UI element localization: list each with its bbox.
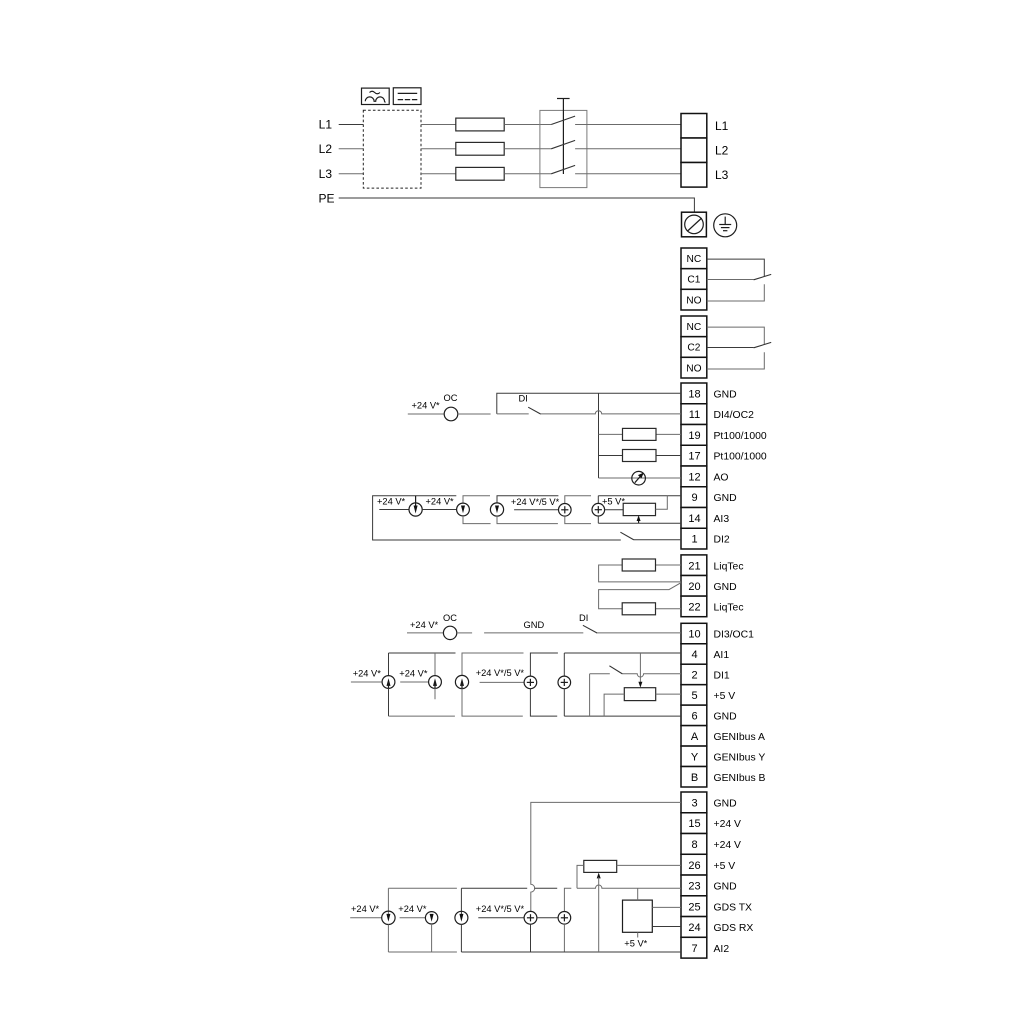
svg-text:LiqTec: LiqTec [714, 561, 744, 572]
svg-text:+24 V*: +24 V* [412, 400, 441, 410]
svg-text:L1: L1 [319, 118, 333, 132]
svg-text:GDS RX: GDS RX [714, 923, 754, 934]
svg-text:+24 V*: +24 V* [410, 620, 439, 630]
svg-text:+24 V*: +24 V* [399, 669, 428, 679]
svg-text:NC: NC [687, 322, 702, 333]
svg-text:GENIbus B: GENIbus B [714, 773, 766, 784]
svg-text:GND: GND [714, 882, 737, 893]
svg-text:DI: DI [579, 613, 588, 623]
svg-text:15: 15 [688, 818, 700, 830]
svg-text:11: 11 [689, 409, 700, 421]
svg-text:GND: GND [714, 712, 737, 723]
svg-text:AI3: AI3 [714, 514, 730, 525]
svg-text:AO: AO [714, 473, 729, 484]
svg-text:+5 V: +5 V [714, 691, 736, 702]
svg-text:DI: DI [519, 394, 528, 404]
svg-text:6: 6 [691, 711, 697, 723]
svg-text:L2: L2 [715, 144, 729, 158]
svg-text:L1: L1 [715, 119, 729, 133]
svg-text:GND: GND [524, 620, 545, 630]
svg-text:DI2: DI2 [714, 535, 730, 546]
svg-text:8: 8 [691, 839, 697, 851]
svg-text:19: 19 [688, 430, 700, 442]
svg-text:GDS TX: GDS TX [714, 902, 753, 913]
svg-text:NO: NO [686, 363, 701, 374]
svg-text:+5 V*: +5 V* [624, 939, 647, 949]
svg-text:OC: OC [444, 393, 458, 403]
svg-text:LiqTec: LiqTec [714, 603, 744, 614]
svg-text:4: 4 [691, 649, 697, 661]
svg-text:DI3/OC1: DI3/OC1 [714, 630, 755, 641]
svg-text:OC: OC [443, 613, 457, 623]
svg-text:5: 5 [691, 690, 697, 702]
svg-text:+24 V: +24 V [714, 819, 742, 830]
svg-text:A: A [691, 731, 699, 743]
svg-text:NO: NO [686, 295, 701, 306]
svg-text:25: 25 [688, 901, 700, 913]
svg-text:+24 V*: +24 V* [351, 904, 380, 914]
svg-text:L3: L3 [319, 167, 333, 181]
svg-text:12: 12 [688, 472, 700, 484]
svg-text:AI2: AI2 [714, 944, 730, 955]
svg-text:L3: L3 [715, 168, 729, 182]
svg-text:L2: L2 [319, 142, 333, 156]
svg-text:+24 V*/5 V*: +24 V*/5 V* [511, 497, 560, 507]
svg-text:26: 26 [688, 860, 700, 872]
svg-text:22: 22 [688, 602, 700, 614]
svg-text:PE: PE [318, 192, 334, 206]
svg-text:9: 9 [691, 492, 697, 504]
svg-text:14: 14 [688, 513, 700, 525]
svg-text:+24 V: +24 V [714, 840, 742, 851]
svg-text:+5 V: +5 V [714, 861, 736, 872]
svg-text:DI1: DI1 [714, 671, 730, 682]
svg-text:C1: C1 [687, 275, 700, 286]
svg-text:AI1: AI1 [714, 650, 730, 661]
svg-text:18: 18 [688, 389, 700, 401]
svg-text:+24 V*/5 V*: +24 V*/5 V* [476, 904, 525, 914]
svg-text:+24 V*: +24 V* [426, 497, 455, 507]
svg-text:B: B [691, 772, 698, 784]
svg-text:GND: GND [714, 493, 737, 504]
svg-text:17: 17 [688, 451, 700, 463]
svg-text:NC: NC [687, 254, 702, 265]
svg-text:GND: GND [714, 799, 737, 810]
svg-text:Pt100/1000: Pt100/1000 [714, 431, 767, 442]
svg-text:3: 3 [691, 798, 697, 810]
svg-text:GND: GND [714, 390, 737, 401]
svg-text:+5 V*: +5 V* [602, 496, 625, 506]
svg-text:24: 24 [688, 922, 700, 934]
svg-text:GND: GND [714, 582, 737, 593]
svg-text:+24 V*: +24 V* [353, 669, 382, 679]
svg-text:10: 10 [688, 629, 700, 641]
svg-text:GENIbus A: GENIbus A [714, 732, 765, 743]
svg-text:2: 2 [691, 670, 697, 682]
svg-text:Y: Y [691, 752, 699, 764]
svg-text:Pt100/1000: Pt100/1000 [714, 452, 767, 463]
svg-text:GENIbus Y: GENIbus Y [714, 753, 766, 764]
svg-text:20: 20 [688, 581, 700, 593]
svg-text:+24 V*: +24 V* [377, 497, 406, 507]
svg-text:+24 V*/5 V*: +24 V*/5 V* [476, 668, 525, 678]
svg-text:21: 21 [688, 560, 700, 572]
svg-text:7: 7 [691, 943, 697, 955]
svg-text:23: 23 [688, 881, 700, 893]
svg-text:+24 V*: +24 V* [398, 904, 427, 914]
svg-text:C2: C2 [687, 343, 700, 354]
svg-text:1: 1 [691, 534, 697, 546]
svg-text:DI4/OC2: DI4/OC2 [714, 410, 755, 421]
